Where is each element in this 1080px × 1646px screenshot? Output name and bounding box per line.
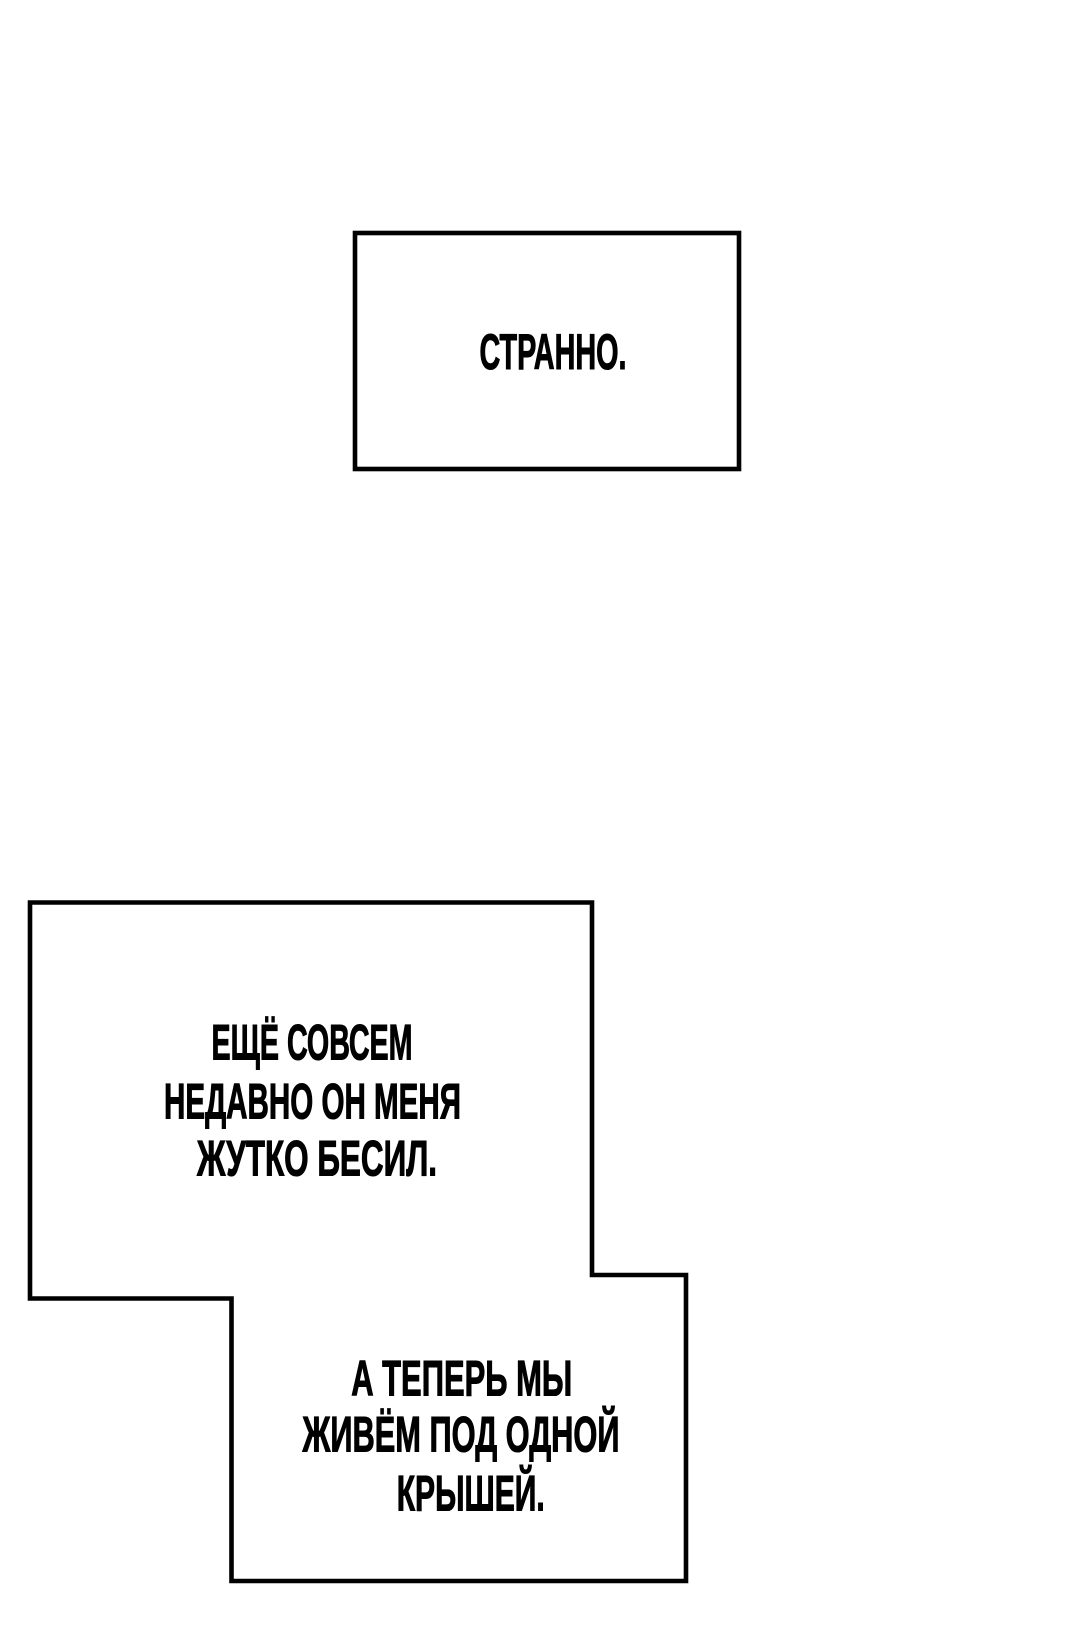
svg-text:ЖУТКО БЕСИЛ.: ЖУТКО БЕСИЛ. [196,1131,437,1187]
svg-text:А ТЕПЕРЬ МЫ: А ТЕПЕРЬ МЫ [351,1350,572,1406]
svg-text:ЖИВЁМ ПОД ОДНОЙ: ЖИВЁМ ПОД ОДНОЙ [302,1405,620,1462]
svg-text:СТРАННО.: СТРАННО. [480,324,627,380]
svg-text:ЕЩЁ СОВСЕМ: ЕЩЁ СОВСЕМ [212,1015,413,1071]
svg-text:НЕДАВНО ОН МЕНЯ: НЕДАВНО ОН МЕНЯ [164,1074,461,1130]
svg-text:КРЫШЕЙ.: КРЫШЕЙ. [397,1464,545,1521]
